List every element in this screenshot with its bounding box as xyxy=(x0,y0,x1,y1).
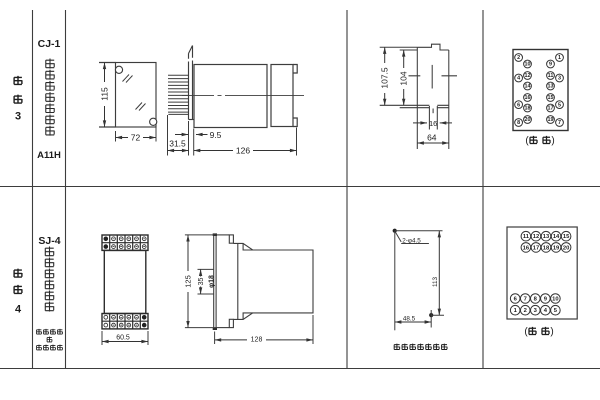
svg-text:14: 14 xyxy=(525,84,531,90)
svg-text:64: 64 xyxy=(427,133,437,143)
svg-text:3: 3 xyxy=(558,76,561,82)
svg-text:16: 16 xyxy=(525,95,531,101)
svg-text:31.5: 31.5 xyxy=(169,139,186,149)
svg-text:9: 9 xyxy=(544,296,548,302)
svg-text:SJ-4: SJ-4 xyxy=(38,235,60,247)
svg-text:2: 2 xyxy=(524,308,527,314)
svg-text:113: 113 xyxy=(432,276,439,287)
svg-text:2-φ4.5: 2-φ4.5 xyxy=(402,237,421,244)
svg-text:107.5: 107.5 xyxy=(380,67,390,89)
svg-text:6: 6 xyxy=(514,296,518,302)
svg-text:16: 16 xyxy=(523,245,530,251)
svg-text:18: 18 xyxy=(543,245,550,251)
svg-text:(: ( xyxy=(525,136,529,147)
svg-text:8: 8 xyxy=(534,296,538,302)
svg-text:): ) xyxy=(551,136,554,147)
svg-text:5: 5 xyxy=(554,308,558,314)
svg-text:115: 115 xyxy=(99,87,109,101)
svg-text:125: 125 xyxy=(184,275,193,288)
svg-text:19: 19 xyxy=(553,245,560,251)
svg-text:10: 10 xyxy=(525,62,531,68)
svg-text:11: 11 xyxy=(548,73,554,79)
svg-text:104: 104 xyxy=(399,71,409,85)
svg-text:126: 126 xyxy=(236,146,250,156)
svg-text:20: 20 xyxy=(563,245,569,251)
svg-text:35: 35 xyxy=(198,278,205,286)
svg-text:1: 1 xyxy=(514,308,518,314)
svg-text:11: 11 xyxy=(523,234,530,240)
svg-text:48.5: 48.5 xyxy=(403,315,416,322)
svg-text:17: 17 xyxy=(533,245,539,251)
svg-text:15: 15 xyxy=(548,95,554,101)
svg-text:9: 9 xyxy=(549,62,552,68)
svg-text:7: 7 xyxy=(524,296,527,302)
svg-text:4: 4 xyxy=(517,76,520,82)
svg-text:17: 17 xyxy=(548,106,554,112)
svg-text:4: 4 xyxy=(15,304,22,316)
svg-text:16: 16 xyxy=(429,119,437,128)
svg-text:): ) xyxy=(550,327,553,338)
svg-text:5: 5 xyxy=(558,102,561,108)
svg-text:15: 15 xyxy=(563,234,570,240)
svg-text:2: 2 xyxy=(517,55,520,61)
svg-text:19: 19 xyxy=(548,117,554,123)
svg-text:72: 72 xyxy=(131,133,141,143)
svg-text:8: 8 xyxy=(517,120,520,126)
svg-text:10: 10 xyxy=(552,296,558,302)
svg-text:6: 6 xyxy=(517,102,520,108)
svg-text:3: 3 xyxy=(15,111,21,123)
svg-text:CJ-1: CJ-1 xyxy=(38,38,61,50)
svg-text:13: 13 xyxy=(548,84,554,90)
svg-text:φ18: φ18 xyxy=(208,275,215,288)
svg-text:12: 12 xyxy=(533,234,539,240)
svg-text:1: 1 xyxy=(558,55,561,61)
svg-text:14: 14 xyxy=(553,234,560,240)
svg-text:3: 3 xyxy=(534,308,538,314)
svg-text:128: 128 xyxy=(251,337,263,344)
svg-text:18: 18 xyxy=(525,106,531,112)
svg-text:(: ( xyxy=(524,327,528,338)
svg-text:A11H: A11H xyxy=(37,150,61,161)
svg-text:12: 12 xyxy=(525,73,531,79)
svg-text:60.5: 60.5 xyxy=(116,335,130,342)
svg-text:9.5: 9.5 xyxy=(210,130,222,140)
svg-text:13: 13 xyxy=(543,234,550,240)
svg-text:4: 4 xyxy=(544,308,548,314)
svg-text:7: 7 xyxy=(558,120,561,126)
svg-text:20: 20 xyxy=(525,117,531,123)
